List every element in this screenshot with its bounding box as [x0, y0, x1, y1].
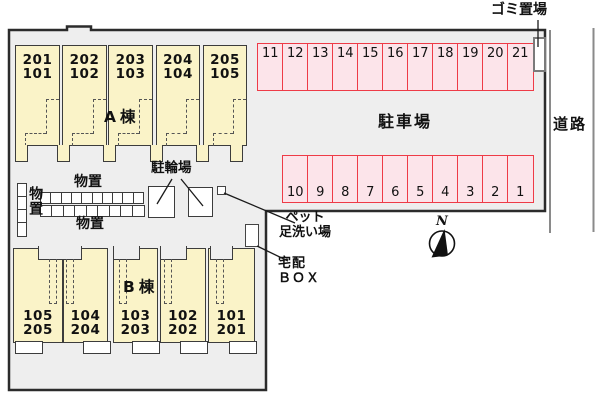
- parking-space-2: 2: [482, 155, 509, 203]
- parking-space-number: 3: [458, 185, 483, 200]
- building-b-notch-2: [113, 246, 140, 260]
- stair-outline-dashed-b-4: [164, 259, 172, 304]
- building-a-entry-tab-1: [15, 145, 28, 163]
- parking-space-8: 8: [332, 155, 359, 203]
- parking-space-number: 5: [408, 185, 433, 200]
- parking-space-number: 16: [383, 46, 408, 61]
- parking-space-18: 18: [432, 43, 459, 91]
- north-label: N: [436, 215, 448, 230]
- stair-outline-dashed: [118, 133, 139, 134]
- storage-label-left: 物置: [27, 186, 43, 216]
- unit-number: 205 105: [204, 53, 246, 81]
- building-a-entry-tab-6: [230, 145, 243, 163]
- bicycle-parking-label: 駐輪場: [151, 161, 192, 177]
- unit-number: 204 104: [157, 53, 199, 81]
- unit-number: 103 203: [114, 309, 157, 337]
- parking-space-number: 21: [508, 46, 533, 61]
- building-a-entry-tab-2: [57, 145, 70, 163]
- parking-space-16: 16: [382, 43, 409, 91]
- building-b-notch-1: [38, 246, 82, 260]
- building-a-unit-5: 205 105: [203, 45, 247, 146]
- storage-cell: [133, 192, 145, 204]
- stair-outline-dashed: [72, 133, 93, 134]
- pet-wash-label: ペット 足洗い場: [255, 211, 355, 241]
- unit-number: 102 202: [161, 309, 205, 337]
- parking-space-13: 13: [307, 43, 334, 91]
- parking-space-number: 11: [258, 46, 283, 61]
- stair-outline-dashed-b-2: [66, 259, 74, 304]
- parking-space-number: 12: [283, 46, 308, 61]
- bicycle-shed-right: [188, 187, 213, 217]
- unit-number: 101 201: [209, 309, 254, 337]
- features-layer: 111213141516171819202110987654321201 101…: [0, 0, 600, 400]
- parking-space-11: 11: [257, 43, 284, 91]
- parking-space-9: 9: [307, 155, 334, 203]
- parking-space-number: 15: [358, 46, 383, 61]
- parking-space-number: 4: [433, 185, 458, 200]
- road-label: 道路: [553, 116, 587, 133]
- parking-space-10: 10: [282, 155, 309, 203]
- storage-label-bottom: 物置: [76, 216, 104, 232]
- stair-outline-dashed: [46, 99, 47, 134]
- building-a-unit-2: 202 102: [62, 45, 107, 146]
- building-b-label: B棟: [123, 279, 158, 297]
- building-b-porch-5: [229, 341, 257, 354]
- unit-number: 105 205: [14, 309, 62, 337]
- stair-outline-dashed: [93, 99, 94, 134]
- unit-number: 104 204: [64, 309, 107, 337]
- stair-outline-dashed-b-1: [49, 259, 57, 304]
- stair-outline-dashed-b-5: [216, 259, 224, 304]
- parking-space-7: 7: [357, 155, 384, 203]
- delivery-box-label: 宅配 ＢＯＸ: [278, 257, 320, 287]
- building-b-porch-1: [15, 341, 43, 354]
- parking-space-number: 10: [283, 185, 308, 200]
- parking-space-4: 4: [432, 155, 459, 203]
- garbage-area-label: ゴミ置場: [491, 2, 547, 18]
- garbage-area-box: [533, 37, 546, 72]
- storage-cell: [132, 205, 145, 217]
- parking-space-5: 5: [407, 155, 434, 203]
- unit-number: 203 103: [109, 53, 152, 81]
- parking-space-number: 8: [333, 185, 358, 200]
- storage-cell: [17, 222, 28, 237]
- stair-outline-dashed: [186, 99, 199, 100]
- parking-space-17: 17: [407, 43, 434, 91]
- unit-number: 202 102: [63, 53, 106, 81]
- building-b-porch-4: [180, 341, 208, 354]
- parking-space-14: 14: [332, 43, 359, 91]
- parking-space-12: 12: [282, 43, 309, 91]
- stair-outline-dashed: [166, 133, 186, 134]
- building-b-porch-2: [83, 341, 111, 354]
- pet-wash-station: [217, 186, 226, 195]
- stair-outline-dashed: [25, 133, 46, 134]
- building-a-unit-3: 203 103: [108, 45, 153, 146]
- parking-space-1: 1: [507, 155, 534, 203]
- storage-label-top: 物置: [74, 174, 102, 190]
- parking-space-number: 14: [333, 46, 358, 61]
- bicycle-shed-left: [148, 186, 175, 218]
- unit-number: 201 101: [16, 53, 59, 81]
- stair-outline-dashed: [213, 133, 214, 146]
- parking-space-number: 9: [308, 185, 333, 200]
- parking-space-21: 21: [507, 43, 534, 91]
- stair-outline-dashed: [213, 133, 233, 134]
- parking-space-number: 19: [458, 46, 483, 61]
- stair-outline-dashed: [233, 99, 246, 100]
- building-a-entry-tab-5: [196, 145, 209, 163]
- stair-outline-dashed: [186, 99, 187, 134]
- building-a-unit-4: 204 104: [156, 45, 200, 146]
- parking-space-number: 13: [308, 46, 333, 61]
- parking-space-20: 20: [482, 43, 509, 91]
- stair-outline-dashed: [233, 99, 234, 134]
- stair-outline-dashed: [139, 99, 152, 100]
- stair-outline-dashed: [118, 133, 119, 146]
- building-b-porch-3: [132, 341, 160, 354]
- stair-outline-dashed: [46, 99, 59, 100]
- stair-outline-dashed: [72, 133, 73, 146]
- parking-space-number: 20: [483, 46, 508, 61]
- building-a-entry-tab-3: [103, 145, 116, 163]
- building-a-label: A棟: [104, 109, 140, 127]
- parking-space-number: 7: [358, 185, 383, 200]
- parking-space-number: 2: [483, 185, 508, 200]
- parking-space-number: 6: [383, 185, 408, 200]
- parking-lot-label: 駐車場: [360, 113, 450, 131]
- building-a-unit-1: 201 101: [15, 45, 60, 146]
- stair-outline-dashed: [93, 99, 106, 100]
- parking-space-number: 1: [508, 185, 533, 200]
- site-plan: 111213141516171819202110987654321201 101…: [0, 0, 600, 400]
- parking-space-15: 15: [357, 43, 384, 91]
- parking-space-6: 6: [382, 155, 409, 203]
- stair-outline-dashed: [166, 133, 167, 146]
- parking-space-number: 18: [433, 46, 458, 61]
- parking-space-number: 17: [408, 46, 433, 61]
- parking-space-3: 3: [457, 155, 484, 203]
- parking-space-19: 19: [457, 43, 484, 91]
